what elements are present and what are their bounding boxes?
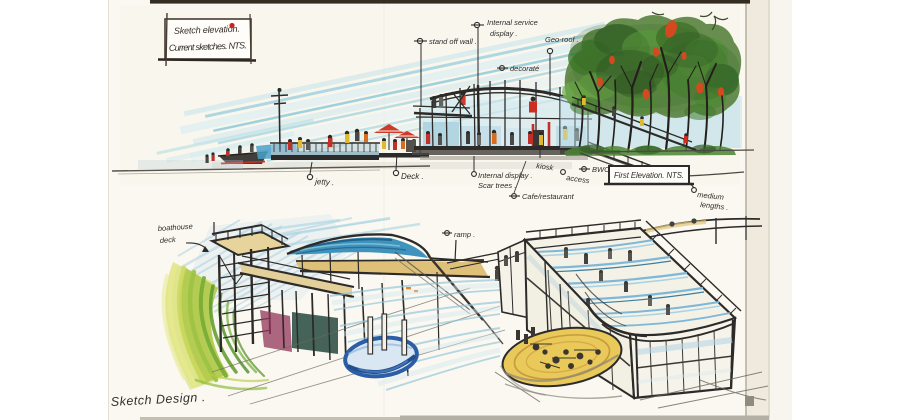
svg-text:Scar trees .: Scar trees . xyxy=(478,181,516,190)
svg-text:Deck .: Deck . xyxy=(401,172,424,181)
svg-text:decoraté: decoraté xyxy=(510,64,539,73)
svg-text:deck: deck xyxy=(160,235,178,245)
svg-text:Internal service: Internal service xyxy=(487,18,538,27)
svg-text:Internal display .: Internal display . xyxy=(478,171,533,180)
svg-text:jetty .: jetty . xyxy=(314,177,335,187)
svg-text:ramp .: ramp . xyxy=(454,230,475,239)
svg-text:Cafe/restaurant: Cafe/restaurant xyxy=(522,192,575,201)
svg-text:Geo-roof .: Geo-roof . xyxy=(545,35,579,44)
svg-text:display .: display . xyxy=(490,29,518,38)
svg-text:First Elevation. NTS.: First Elevation. NTS. xyxy=(614,171,684,180)
svg-text:stand off wall .: stand off wall . xyxy=(429,37,477,46)
